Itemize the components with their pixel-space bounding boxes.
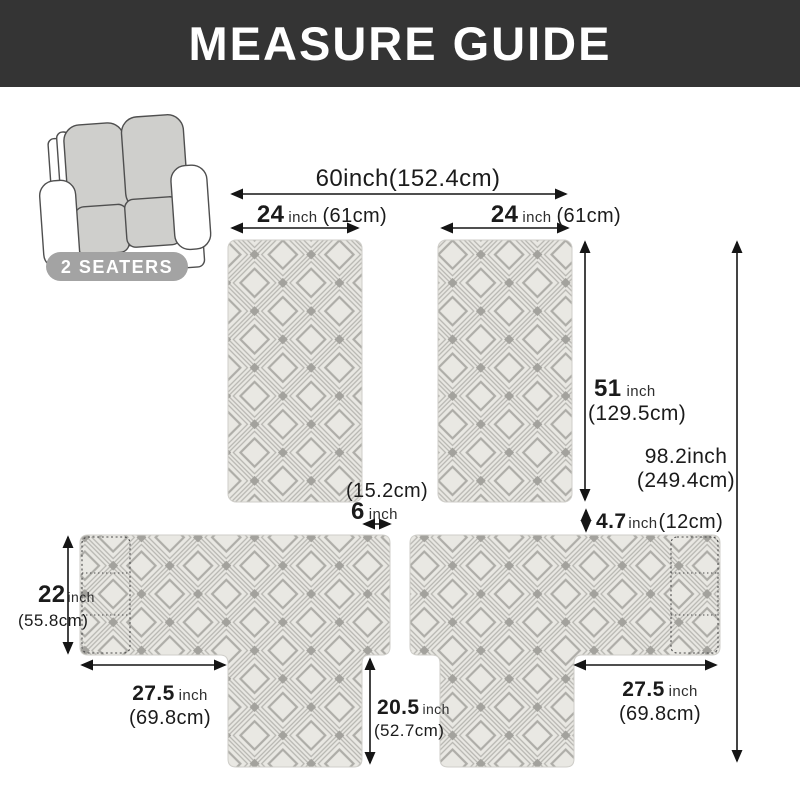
dim-back-width-left: 24inch(61cm) (232, 201, 387, 228)
back-panel-right (438, 240, 572, 502)
dim-center-gap-label: 6inch (351, 498, 398, 525)
dim-back-height-metric: (129.5cm) (588, 402, 686, 425)
dim-arm-length-right-metric: (69.8cm) (619, 703, 701, 725)
measure-guide-page: MEASURE GUIDE 2 SEATERS 60inch(152.4c (0, 0, 800, 800)
dim-arm-height-metric: (55.8cm) (18, 611, 88, 630)
seat-band-skirt-right (410, 535, 720, 767)
dim-arm-length-left: 27.5inch (69.8cm) (82, 665, 225, 729)
dim-arm-length-right: 27.5inch (69.8cm) (575, 665, 716, 725)
dim-arm-length-left-label: 27.5inch (132, 682, 208, 705)
dim-front-height-metric: (52.7cm) (374, 721, 444, 740)
measure-diagram: MEASURE GUIDE 2 SEATERS 60inch(152.4c (0, 0, 800, 800)
armrest-right (170, 164, 212, 250)
dim-front-height-label: 20.5inch (377, 696, 450, 719)
dim-total-length-label: 98.2inch (645, 445, 728, 468)
dim-front-height: 20.5inch (52.7cm) (370, 659, 450, 763)
dim-total-width: 60inch(152.4cm) (232, 165, 566, 194)
seat-cushion-left (75, 204, 130, 256)
dim-tuck: 4.7inch(12cm) (586, 510, 723, 533)
page-title: MEASURE GUIDE (189, 17, 612, 70)
dim-total-width-label: 60inch(152.4cm) (316, 165, 501, 192)
dim-back-width-left-label: 24inch(61cm) (257, 201, 387, 228)
header-banner: MEASURE GUIDE (0, 0, 800, 87)
dim-arm-length-left-metric: (69.8cm) (129, 707, 211, 729)
dim-total-length-metric: (249.4cm) (637, 469, 735, 492)
dim-back-width-right: 24inch(61cm) (442, 201, 621, 228)
dim-tuck-label: 4.7inch(12cm) (596, 510, 723, 533)
seat-band-skirt-left (80, 535, 390, 767)
cover-piece-left (80, 240, 390, 767)
dim-back-width-right-label: 24inch(61cm) (491, 201, 621, 228)
dim-center-gap: (15.2cm) 6inch (346, 480, 428, 525)
badge-label: 2 SEATERS (61, 257, 173, 277)
seater-badge: 2 SEATERS (46, 252, 188, 281)
back-panel-left (228, 240, 362, 502)
dim-back-height-label: 51inch (594, 375, 656, 402)
dim-arm-length-right-label: 27.5inch (622, 678, 698, 701)
